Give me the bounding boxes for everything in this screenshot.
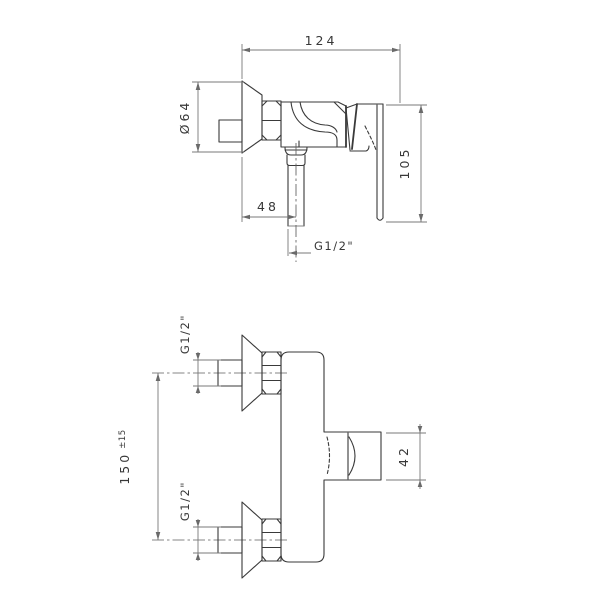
arrowhead [156, 532, 161, 540]
union-nut [262, 101, 281, 140]
arrowhead [418, 480, 423, 487]
dim-inlet-centres-label: 150±15 [117, 429, 132, 484]
side-view: 124 Ø64 105 48 G1/2" [177, 33, 427, 262]
body-outline [281, 352, 381, 562]
valve-body [281, 102, 346, 147]
arrowhead [196, 353, 201, 360]
handle-tip [377, 218, 383, 220]
callout-outlet-thread-label: G1/2" [314, 239, 354, 253]
handle-hidden-edge [365, 126, 376, 150]
dim-inlet-centres: 150±15 [117, 373, 160, 540]
body-front [281, 352, 381, 562]
handle-cap-arc [349, 437, 355, 475]
callout-outlet-thread: G1/2" [288, 229, 354, 256]
body-chamfer [334, 102, 346, 114]
callout-inlet-thread-bottom: G1/2" [178, 481, 221, 561]
arrowhead [196, 520, 201, 527]
callout-inlet-thread-top-label: G1/2" [178, 314, 192, 354]
dim-overall-depth: 124 [242, 33, 400, 103]
arrowhead [419, 105, 424, 113]
front-view-fixture [152, 335, 381, 578]
arrowhead [418, 426, 423, 433]
arrowhead [392, 48, 400, 53]
side-view-fixture [219, 81, 383, 262]
arrowhead [196, 144, 201, 152]
technical-drawing: 124 Ø64 105 48 G1/2" [0, 0, 600, 600]
arrowhead [419, 214, 424, 222]
arrowhead [289, 251, 297, 255]
arrowhead [156, 373, 161, 381]
waterway-outer [291, 102, 337, 147]
front-view: 150±15 G1/2" G1/2" 42 [117, 314, 426, 578]
dim-body-height: 105 [386, 105, 427, 222]
dim-body-height-label: 105 [397, 147, 412, 180]
callout-inlet-thread-top: G1/2" [178, 314, 221, 394]
dim-outlet-offset-label: 48 [257, 199, 279, 214]
arrowhead [196, 82, 201, 90]
dim-handle-width: 42 [386, 424, 426, 489]
arrowhead [242, 48, 250, 53]
handle-hub-front [352, 104, 357, 149]
arrowhead [196, 553, 201, 560]
body-hidden-edge [327, 437, 330, 475]
arrowhead [242, 215, 250, 220]
drawing-sheet: 124 Ø64 105 48 G1/2" [0, 0, 600, 600]
lever-handle [346, 104, 383, 220]
dim-flange-diameter-label: Ø64 [177, 100, 192, 135]
arrowhead [288, 215, 296, 220]
arrowhead [196, 386, 201, 393]
callout-inlet-thread-bottom-label: G1/2" [178, 481, 192, 521]
wall-union-fitting [219, 120, 242, 142]
dim-handle-width-label: 42 [396, 445, 411, 467]
dim-overall-depth-label: 124 [305, 33, 338, 48]
wall-flange [242, 81, 262, 153]
